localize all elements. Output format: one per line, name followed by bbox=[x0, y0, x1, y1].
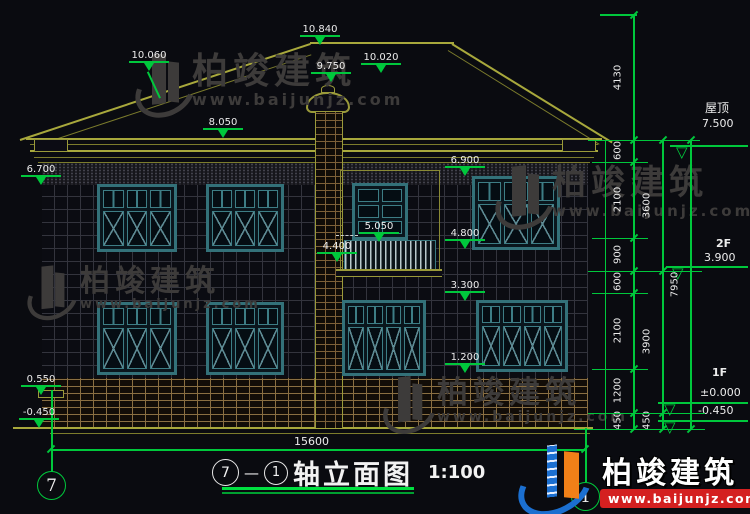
elevation-marker: 10.020 bbox=[360, 52, 402, 73]
title-axis-bubble-end: 1 bbox=[264, 461, 288, 485]
second-floor-label: 2F bbox=[716, 238, 731, 250]
elevation-value: 6.700 bbox=[27, 164, 56, 175]
dashed-leader bbox=[336, 235, 358, 236]
window-transom-pane bbox=[404, 306, 420, 324]
window-transom-pane bbox=[503, 306, 521, 323]
elevation-marker: 8.050 bbox=[202, 117, 244, 138]
elevation-value: 10.840 bbox=[303, 24, 338, 35]
watermark-logo-icon bbox=[500, 164, 544, 222]
window-transom-pane bbox=[127, 190, 148, 208]
window-casement-pane bbox=[212, 211, 232, 246]
level-line bbox=[588, 140, 700, 141]
elevation-triangle-icon bbox=[332, 254, 342, 262]
level-line bbox=[592, 369, 648, 370]
window-casement-pane bbox=[150, 328, 171, 369]
window-casement-pane bbox=[386, 327, 402, 370]
window-casement-pane bbox=[367, 327, 383, 370]
window-transom-pane bbox=[348, 306, 364, 324]
elevation-marker: 6.700 bbox=[20, 164, 62, 185]
window-transom-pane bbox=[367, 306, 383, 324]
window-casement-pane bbox=[235, 211, 255, 246]
window-casement-pane bbox=[544, 326, 562, 366]
elevation-marker: 0.550 bbox=[20, 374, 62, 395]
window bbox=[97, 184, 177, 252]
dimension-chain-line bbox=[662, 140, 664, 429]
elevation-marker: 3.300 bbox=[444, 280, 486, 301]
title-underline-thick bbox=[222, 487, 414, 490]
dimension-label: 2100 bbox=[612, 299, 625, 363]
watermark: 柏竣建筑 www.baijunjz.com bbox=[28, 260, 261, 318]
brand-logo-icon bbox=[524, 440, 600, 510]
elevation-value: 1.200 bbox=[451, 352, 480, 363]
elevation-value: 10.020 bbox=[364, 52, 399, 63]
drawing-scale: 1:100 bbox=[428, 462, 485, 483]
pilaster-cap-left bbox=[34, 139, 68, 152]
door-pane bbox=[358, 189, 379, 202]
elevation-triangle-icon bbox=[460, 168, 470, 176]
elevation-value: 3.300 bbox=[451, 280, 480, 291]
window-transom-pane bbox=[212, 190, 232, 208]
elevation-marker: 4.800 bbox=[444, 228, 486, 249]
window-transom-pane bbox=[150, 190, 171, 208]
door-pane bbox=[382, 189, 403, 202]
window-transom-pane bbox=[524, 306, 542, 323]
title-axis-bubble-start: 7 bbox=[212, 459, 239, 486]
window-casement-pane bbox=[103, 328, 124, 369]
window-transom-pane bbox=[544, 306, 562, 323]
window-casement-pane bbox=[258, 328, 278, 369]
elevation-triangle-icon bbox=[36, 177, 46, 185]
axis-bubble-left: 7 bbox=[37, 471, 66, 500]
elevation-triangle-icon bbox=[460, 241, 470, 249]
dimension-chain-line bbox=[690, 140, 692, 429]
elevation-triangle-icon bbox=[315, 37, 325, 45]
extension-line bbox=[605, 140, 606, 429]
fascia-line bbox=[30, 150, 598, 152]
axis-line-left bbox=[51, 390, 53, 472]
window-transom-pane bbox=[258, 308, 278, 325]
elevation-marker: 9.750 bbox=[310, 61, 352, 82]
elevation-value: 4.400 bbox=[323, 241, 352, 252]
elevation-value: 6.900 bbox=[451, 155, 480, 166]
window bbox=[206, 184, 284, 252]
elevation-value: 0.550 bbox=[27, 374, 56, 385]
title-underline-thin bbox=[222, 492, 414, 494]
window-casement-pane bbox=[127, 211, 148, 246]
dimension-label: 3900 bbox=[641, 310, 654, 374]
elevation-value: 4.800 bbox=[451, 228, 480, 239]
dimension-label: 450 bbox=[641, 389, 654, 453]
level-line bbox=[574, 429, 705, 430]
elevation-marker: 1.200 bbox=[444, 352, 486, 373]
window-transom-pane bbox=[482, 306, 500, 323]
dimension-label: 3600 bbox=[641, 173, 654, 237]
elevation-marker: 10.840 bbox=[299, 24, 341, 45]
level-line bbox=[592, 293, 648, 294]
watermark-url: www.baijunjz.com bbox=[192, 90, 403, 109]
elevation-triangle-icon bbox=[374, 234, 384, 242]
level-line bbox=[592, 162, 648, 163]
elevation-value: 8.050 bbox=[209, 117, 238, 128]
level-line bbox=[588, 271, 702, 272]
dimension-label: 7950 bbox=[669, 252, 682, 316]
elevation-triangle-icon bbox=[460, 365, 470, 373]
window-transom-pane bbox=[235, 190, 255, 208]
watermark: 柏竣建筑 www.baijunjz.com bbox=[500, 164, 750, 222]
watermark-url: www.baijunjz.com bbox=[437, 409, 628, 425]
balcony-slab bbox=[336, 269, 442, 277]
window-casement-pane bbox=[103, 211, 124, 246]
elevation-marker: 10.060 bbox=[128, 50, 170, 71]
window-casement-pane bbox=[150, 211, 171, 246]
window-casement-pane bbox=[524, 326, 542, 366]
elevation-triangle-icon bbox=[460, 293, 470, 301]
window-transom-pane bbox=[103, 190, 124, 208]
dimension-label: 450 bbox=[612, 389, 625, 453]
elevation-value: 10.060 bbox=[132, 50, 167, 61]
elevation-marker: 6.900 bbox=[444, 155, 486, 176]
window-casement-pane bbox=[503, 326, 521, 366]
overall-width-value: 15600 bbox=[294, 436, 329, 448]
watermark: 柏竣建筑 www.baijunjz.com bbox=[385, 372, 628, 430]
elevation-value: -0.450 bbox=[23, 407, 55, 418]
watermark-brand: 柏竣建筑 bbox=[80, 266, 261, 298]
elevation-triangle-icon bbox=[144, 63, 154, 71]
fascia-line bbox=[26, 138, 602, 140]
roof-level-value: 7.500 bbox=[702, 118, 734, 130]
door-pane bbox=[382, 205, 403, 218]
window-casement-pane bbox=[258, 211, 278, 246]
fascia-line bbox=[34, 157, 594, 158]
watermark-logo-icon bbox=[31, 264, 68, 313]
cad-canvas: 柏竣建筑 www.baijunjz.com 柏竣建筑 www.baijunjz.… bbox=[0, 0, 750, 514]
dimension-label: 4130 bbox=[612, 45, 625, 109]
elevation-marker: -0.450 bbox=[18, 407, 60, 428]
window bbox=[476, 300, 568, 372]
elevation-triangle-icon bbox=[376, 65, 386, 73]
window-casement-pane bbox=[127, 328, 148, 369]
elevation-triangle-icon bbox=[36, 387, 46, 395]
elevation-marker: 4.400 bbox=[316, 241, 358, 262]
window-casement-pane bbox=[235, 328, 255, 369]
first-floor-zero-value: ±0.000 bbox=[700, 387, 741, 399]
first-floor-label: 1F bbox=[712, 367, 727, 379]
level-line bbox=[592, 238, 648, 239]
elevation-triangle-icon bbox=[218, 130, 228, 138]
title-dash: — bbox=[244, 464, 259, 482]
elevation-value: 9.750 bbox=[317, 61, 346, 72]
watermark-logo-icon bbox=[387, 375, 427, 427]
window-casement-pane bbox=[348, 327, 364, 370]
level-line bbox=[588, 413, 705, 414]
brand-name: 柏竣建筑 bbox=[602, 448, 738, 492]
second-floor-value: 3.900 bbox=[704, 252, 736, 264]
first-floor-minus-value: -0.450 bbox=[698, 405, 733, 417]
door-pane bbox=[358, 205, 379, 218]
brand-url: www.baijunjz.com bbox=[600, 489, 750, 508]
window-transom-pane bbox=[386, 306, 402, 324]
dimension-line-15600 bbox=[51, 449, 587, 451]
fascia-line bbox=[30, 144, 598, 145]
ground-line-lower bbox=[50, 433, 590, 434]
elevation-value: 5.050 bbox=[365, 221, 394, 232]
window-casement-pane bbox=[404, 327, 420, 370]
roof-level-name: 屋顶 bbox=[705, 102, 729, 114]
elevation-marker: 5.050 bbox=[358, 221, 400, 242]
window-casement-pane bbox=[212, 328, 232, 369]
watermark-brand: 柏竣建筑 bbox=[437, 377, 628, 410]
elevation-triangle-icon bbox=[34, 420, 44, 428]
watermark-url: www.baijunjz.com bbox=[80, 297, 261, 312]
elevation-triangle-icon bbox=[676, 146, 688, 159]
elevation-triangle-icon bbox=[326, 74, 336, 82]
window bbox=[342, 300, 426, 376]
window-transom-pane bbox=[258, 190, 278, 208]
